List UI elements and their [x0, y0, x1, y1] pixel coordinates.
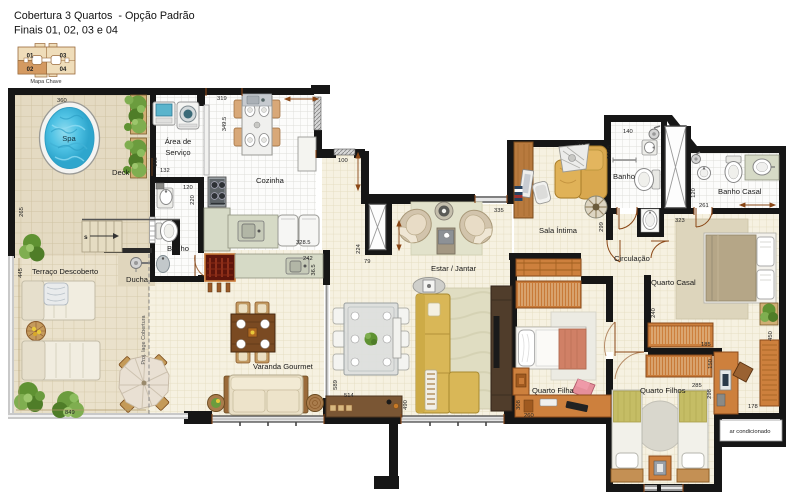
svg-text:Finais 01, 02, 03 e 04: Finais 01, 02, 03 e 04 — [14, 25, 118, 37]
svg-text:445: 445 — [18, 268, 24, 278]
svg-text:220: 220 — [190, 195, 196, 205]
svg-text:120: 120 — [183, 185, 193, 191]
svg-text:Terraço Descoberto: Terraço Descoberto — [32, 267, 98, 276]
svg-text:Circulação: Circulação — [614, 254, 650, 263]
svg-text:Ducha: Ducha — [126, 275, 149, 284]
svg-text:260: 260 — [576, 141, 586, 147]
svg-text:Cobertura 3 Quartos - Opção P: Cobertura 3 Quartos - Opção Padrão — [14, 10, 195, 22]
svg-text:132: 132 — [160, 168, 170, 174]
svg-text:150: 150 — [708, 359, 714, 369]
svg-text:03: 03 — [60, 54, 67, 60]
svg-text:Mapa Chave: Mapa Chave — [30, 79, 61, 85]
svg-text:Deck: Deck — [112, 168, 130, 177]
svg-text:265: 265 — [19, 207, 25, 217]
svg-text:Quarto Casal: Quarto Casal — [651, 278, 696, 287]
svg-text:02: 02 — [27, 67, 34, 73]
svg-text:100: 100 — [338, 158, 348, 164]
svg-text:120: 120 — [691, 188, 697, 198]
svg-text:849: 849 — [65, 410, 75, 416]
svg-text:323: 323 — [675, 218, 685, 224]
svg-text:Área de: Área de — [165, 137, 192, 146]
svg-text:79: 79 — [364, 259, 370, 265]
svg-text:239.5: 239.5 — [607, 145, 613, 160]
svg-text:240: 240 — [651, 308, 657, 318]
svg-text:328.5: 328.5 — [296, 240, 311, 246]
svg-text:Spa: Spa — [62, 134, 76, 143]
svg-text:242: 242 — [303, 256, 313, 262]
svg-text:185: 185 — [701, 342, 711, 348]
svg-text:Varanda Gourmet: Varanda Gourmet — [253, 362, 314, 371]
svg-text:Quarto Filhos: Quarto Filhos — [640, 386, 686, 395]
svg-text:260: 260 — [524, 413, 534, 419]
svg-text:360: 360 — [57, 98, 67, 104]
svg-text:349.5: 349.5 — [222, 117, 228, 132]
svg-text:Estar / Jantar: Estar / Jantar — [431, 264, 477, 273]
svg-text:299: 299 — [599, 222, 605, 232]
svg-text:589: 589 — [333, 380, 339, 390]
svg-text:Banho: Banho — [167, 244, 189, 253]
svg-text:Banho: Banho — [613, 172, 635, 181]
svg-text:308: 308 — [516, 400, 522, 410]
svg-text:224: 224 — [356, 243, 362, 253]
svg-text:Quarto Filha: Quarto Filha — [532, 386, 575, 395]
svg-text:514: 514 — [344, 393, 354, 399]
svg-text:261: 261 — [699, 203, 709, 209]
svg-text:Serviço: Serviço — [165, 148, 190, 157]
svg-text:285: 285 — [692, 383, 702, 389]
svg-text:Sala Íntima: Sala Íntima — [539, 226, 578, 235]
svg-text:335: 335 — [494, 208, 504, 214]
svg-text:04: 04 — [60, 67, 67, 73]
svg-text:178: 178 — [748, 404, 758, 410]
svg-text:319: 319 — [217, 96, 227, 102]
svg-text:450: 450 — [768, 331, 774, 341]
svg-text:140: 140 — [623, 129, 633, 135]
svg-text:36.5: 36.5 — [311, 264, 317, 275]
svg-text:ar condicionado: ar condicionado — [730, 429, 771, 435]
svg-text:Banho Casal: Banho Casal — [718, 187, 762, 196]
svg-text:490: 490 — [403, 400, 409, 410]
svg-text:Cozinha: Cozinha — [256, 176, 285, 185]
svg-text:Proj. lage Cobertura: Proj. lage Cobertura — [141, 314, 147, 364]
svg-text:01: 01 — [27, 54, 34, 60]
svg-text:160: 160 — [153, 157, 159, 167]
svg-text:s: s — [84, 234, 88, 241]
svg-text:298: 298 — [707, 389, 713, 399]
